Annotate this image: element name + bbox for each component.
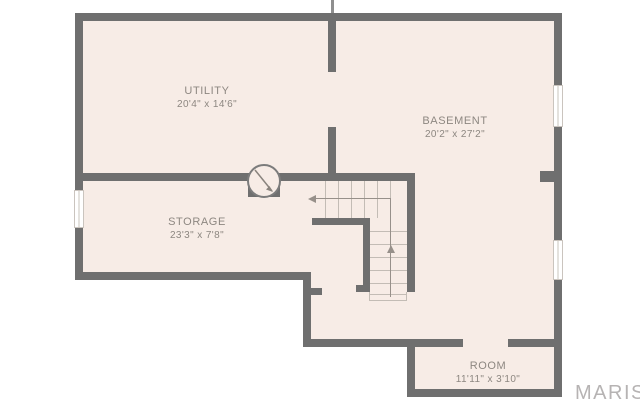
wall-utility-bottom-right: [276, 173, 415, 181]
wall-top-mark: [331, 0, 334, 13]
room-name: UTILITY: [177, 84, 237, 98]
room-dims: 11'11" x 3'10": [456, 373, 521, 387]
stair-tread: [370, 231, 407, 232]
room-name: ROOM: [456, 359, 521, 373]
stair-tread: [370, 294, 407, 295]
wall-bottom-left-segment: [303, 339, 463, 347]
room-label-basement: BASEMENT 20'2" x 27'2": [422, 114, 487, 142]
window-right-upper: [553, 85, 563, 127]
wall-right-lower: [554, 280, 562, 397]
room-name: STORAGE: [168, 215, 226, 229]
watermark: MARIS: [575, 382, 640, 405]
room-dims: 23'3" x 7'8": [168, 229, 226, 243]
stair-tread: [370, 283, 407, 284]
wall-hall-stub: [311, 288, 322, 295]
stair-outline-bottom: [369, 300, 407, 301]
wall-utility-bottom-left: [75, 173, 252, 181]
room-label-utility: UTILITY 20'4" x 14'6": [177, 84, 237, 112]
stair-tread: [338, 181, 339, 218]
wall-room-bottom: [407, 389, 562, 397]
room-dims: 20'2" x 27'2": [422, 128, 487, 142]
wall-partition-upper: [328, 13, 336, 72]
stair-guide-horizontal: [314, 198, 390, 199]
floor-area-lower-hall: [303, 272, 562, 347]
room-dims: 20'4" x 14'6": [177, 98, 237, 112]
stair-tread: [377, 181, 378, 218]
floor-area-upper: [75, 13, 562, 280]
room-name: BASEMENT: [422, 114, 487, 128]
stair-tread: [364, 181, 365, 218]
wall-right-upper: [554, 13, 562, 85]
wall-stair-middle: [312, 218, 370, 225]
window-left: [74, 190, 84, 228]
wall-right-stub: [540, 171, 554, 182]
compass-icon: [245, 162, 283, 200]
wall-lowerleft-vertical: [303, 272, 311, 347]
wall-stair-exit-stub: [356, 285, 370, 292]
room-label-storage: STORAGE 23'3" x 7'8": [168, 215, 226, 243]
stair-tread: [325, 181, 326, 218]
wall-stair-left: [363, 218, 370, 292]
stair-tread: [370, 270, 407, 271]
stair-tread: [351, 181, 352, 218]
window-right-lower: [553, 240, 563, 280]
wall-storage-bottom: [75, 272, 311, 280]
stair-arrow-left-icon: [308, 195, 316, 203]
stair-arrow-up-icon: [387, 245, 395, 253]
stair-tread: [370, 257, 407, 258]
wall-left-upper: [75, 13, 83, 190]
wall-top: [75, 13, 562, 21]
wall-partition-lower: [328, 127, 336, 181]
wall-stair-right: [407, 173, 415, 292]
room-label-room: ROOM 11'11" x 3'10": [456, 359, 521, 387]
floorplan: UTILITY 20'4" x 14'6" BASEMENT 20'2" x 2…: [0, 0, 640, 406]
wall-right-middle: [554, 127, 562, 240]
